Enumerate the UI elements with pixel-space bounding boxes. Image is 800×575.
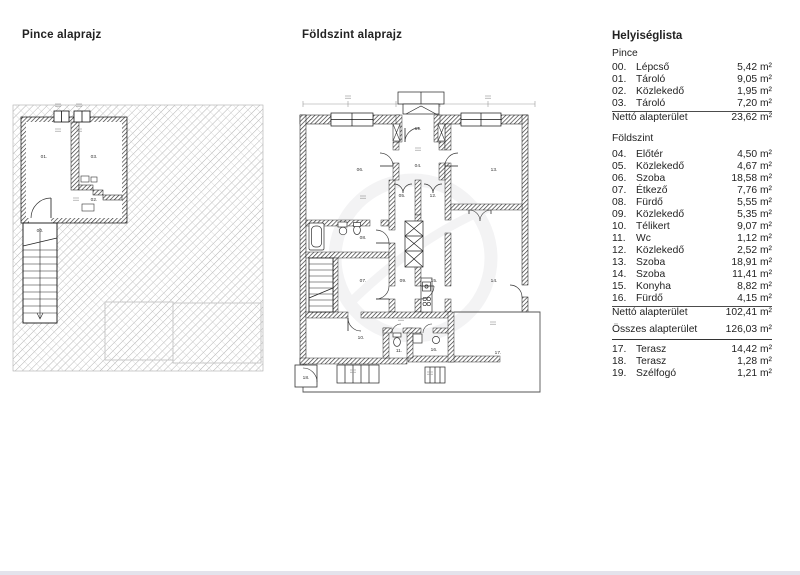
room-area: 4,50 m² xyxy=(737,149,772,161)
room-list-title: Helyiséglista xyxy=(612,30,772,44)
room-label-14: 14. xyxy=(491,278,498,284)
room-label-02: 02. xyxy=(91,197,98,203)
grand-total-area: 126,03 m² xyxy=(726,324,772,336)
room-area: 1,21 m² xyxy=(737,368,772,380)
basement-walls xyxy=(21,117,127,223)
room-label-03: 03. xyxy=(91,154,98,160)
room-name: Szoba xyxy=(636,173,731,185)
room-label-16: 16. xyxy=(431,347,438,353)
wc-icon xyxy=(393,333,401,346)
room-name: Terasz xyxy=(636,344,731,356)
room-name: Fürdő xyxy=(636,293,737,305)
room-name: Lépcső xyxy=(636,62,737,74)
room-number: 12. xyxy=(612,245,636,257)
room-name: Előtér xyxy=(636,149,737,161)
room-number: 18. xyxy=(612,356,636,368)
room-row: 00. Lépcső 5,42 m² xyxy=(612,62,772,74)
section-heading-foldszint: Földszint xyxy=(612,133,772,145)
room-name: Terasz xyxy=(636,356,737,368)
room-row: 15. Konyha 8,82 m² xyxy=(612,281,772,293)
room-row: 11. Wc 1,12 m² xyxy=(612,233,772,245)
room-label-04: 04. xyxy=(415,163,422,169)
room-label-12: 12. xyxy=(430,193,437,199)
bathtub-icon xyxy=(309,223,324,250)
subtotal-label: Nettó alapterület xyxy=(612,307,726,319)
room-row: 02. Közlekedő 1,95 m² xyxy=(612,86,772,98)
room-name: Étkező xyxy=(636,185,737,197)
floor-plan-sheet: Pince alaprajz Földszint alaprajz xyxy=(0,0,800,575)
room-name: Közlekedő xyxy=(636,209,737,221)
room-number: 04. xyxy=(612,149,636,161)
room-area: 9,05 m² xyxy=(737,74,772,86)
room-name: Tároló xyxy=(636,74,737,86)
subtotal-row: Nettó alapterület 23,62 m² xyxy=(612,112,772,124)
room-number: 09. xyxy=(612,209,636,221)
room-row: 07. Étkező 7,76 m² xyxy=(612,185,772,197)
room-label-17: 17. xyxy=(495,350,502,356)
room-number: 15. xyxy=(612,281,636,293)
room-area: 7,20 m² xyxy=(737,98,772,110)
grand-total-label: Összes alapterület xyxy=(612,324,726,336)
room-label-08: 08. xyxy=(360,235,367,241)
room-label-06: 06. xyxy=(357,167,364,173)
room-number: 05. xyxy=(612,161,636,173)
basement-plan-title: Pince alaprajz xyxy=(22,29,102,41)
window-edge-bar xyxy=(0,571,800,575)
room-row: 01. Tároló 9,05 m² xyxy=(612,74,772,86)
room-row: 12. Közlekedő 2,52 m² xyxy=(612,245,772,257)
room-label-09: 09. xyxy=(400,278,407,284)
room-number: 13. xyxy=(612,257,636,269)
divider xyxy=(612,339,772,340)
room-label-07: 07. xyxy=(360,278,367,284)
ground-floor-plan-drawing: 04. 05. 06. 07. 08. 09. 10. 11. 12. 13. … xyxy=(293,90,545,395)
room-row: 18. Terasz 1,28 m² xyxy=(612,356,772,368)
room-area: 1,12 m² xyxy=(737,233,772,245)
room-number: 08. xyxy=(612,197,636,209)
room-row: 16. Fürdő 4,15 m² xyxy=(612,293,772,305)
room-area: 1,95 m² xyxy=(737,86,772,98)
room-number: 17. xyxy=(612,344,636,356)
room-name: Wc xyxy=(636,233,737,245)
room-row: 09. Közlekedő 5,35 m² xyxy=(612,209,772,221)
room-name: Konyha xyxy=(636,281,737,293)
room-label-19: 19. xyxy=(415,126,422,132)
basement-plan-drawing: 00. 01. 02. 03. xyxy=(10,100,265,375)
room-name: Közlekedő xyxy=(636,86,737,98)
room-label-05: 05. xyxy=(399,193,406,199)
room-area: 18,91 m² xyxy=(731,257,772,269)
entry-steps xyxy=(398,92,444,114)
room-number: 16. xyxy=(612,293,636,305)
room-name: Szoba xyxy=(636,257,731,269)
room-number: 10. xyxy=(612,221,636,233)
room-number: 02. xyxy=(612,86,636,98)
shaft-icon xyxy=(405,221,423,267)
room-number: 11. xyxy=(612,233,636,245)
subtotal-area: 102,41 m² xyxy=(726,307,772,319)
room-name: Szélfogó xyxy=(636,368,737,380)
room-label-01: 01. xyxy=(41,154,48,160)
room-name: Tároló xyxy=(636,98,737,110)
dimension-mark xyxy=(485,96,491,98)
basement-stairs xyxy=(23,223,57,323)
room-number: 07. xyxy=(612,185,636,197)
room-row: 17. Terasz 14,42 m² xyxy=(612,344,772,356)
room-number: 00. xyxy=(612,62,636,74)
room-name: Közlekedő xyxy=(636,245,737,257)
room-row: 13. Szoba 18,91 m² xyxy=(612,257,772,269)
subtotal-area: 23,62 m² xyxy=(731,112,772,124)
room-name: Télikert xyxy=(636,221,737,233)
room-row: 04. Előtér 4,50 m² xyxy=(612,149,772,161)
room-area: 7,76 m² xyxy=(737,185,772,197)
ground-stairs xyxy=(309,258,333,312)
room-row: 19. Szélfogó 1,21 m² xyxy=(612,368,772,380)
room-name: Fürdő xyxy=(636,197,737,209)
room-label-10: 10. xyxy=(358,335,365,341)
room-label-00: 00. xyxy=(37,228,44,234)
ground-floor-plan: 04. 05. 06. 07. 08. 09. 10. 11. 12. 13. … xyxy=(293,90,545,395)
room-number: 06. xyxy=(612,173,636,185)
room-area: 8,82 m² xyxy=(737,281,772,293)
room-row: 14. Szoba 11,41 m² xyxy=(612,269,772,281)
subtotal-label: Nettó alapterület xyxy=(612,112,731,124)
room-area: 4,15 m² xyxy=(737,293,772,305)
subtotal-row: Nettó alapterület 102,41 m² xyxy=(612,307,772,319)
room-area: 1,28 m² xyxy=(737,356,772,368)
room-row: 06. Szoba 18,58 m² xyxy=(612,173,772,185)
room-label-15: 15. xyxy=(431,278,438,284)
room-name: Közlekedő xyxy=(636,161,737,173)
basement-plan: 00. 01. 02. 03. xyxy=(10,100,265,375)
ground-plan-title: Földszint alaprajz xyxy=(302,29,402,41)
room-area: 14,42 m² xyxy=(731,344,772,356)
room-row: 03. Tároló 7,20 m² xyxy=(612,98,772,110)
section-heading-pince: Pince xyxy=(612,48,772,60)
room-area: 4,67 m² xyxy=(737,161,772,173)
room-area: 5,35 m² xyxy=(737,209,772,221)
room-list-panel: Helyiséglista Pince 00. Lépcső 5,42 m² 0… xyxy=(612,30,772,380)
room-number: 19. xyxy=(612,368,636,380)
room-area: 9,07 m² xyxy=(737,221,772,233)
room-label-13: 13. xyxy=(491,167,498,173)
room-area: 2,52 m² xyxy=(737,245,772,257)
room-number: 01. xyxy=(612,74,636,86)
room-area: 5,55 m² xyxy=(737,197,772,209)
grand-total-row: Összes alapterület 126,03 m² xyxy=(612,324,772,336)
room-area: 11,41 m² xyxy=(732,269,772,281)
dimension-mark xyxy=(345,96,351,98)
room-name: Szoba xyxy=(636,269,732,281)
room-row: 05. Közlekedő 4,67 m² xyxy=(612,161,772,173)
room-number: 14. xyxy=(612,269,636,281)
room-label-18: 18. xyxy=(303,375,310,381)
room-row: 10. Télikert 9,07 m² xyxy=(612,221,772,233)
room-row: 08. Fürdő 5,55 m² xyxy=(612,197,772,209)
room-number: 03. xyxy=(612,98,636,110)
room-area: 18,58 m² xyxy=(731,173,772,185)
room-area: 5,42 m² xyxy=(737,62,772,74)
room-label-11: 11. xyxy=(396,348,402,354)
